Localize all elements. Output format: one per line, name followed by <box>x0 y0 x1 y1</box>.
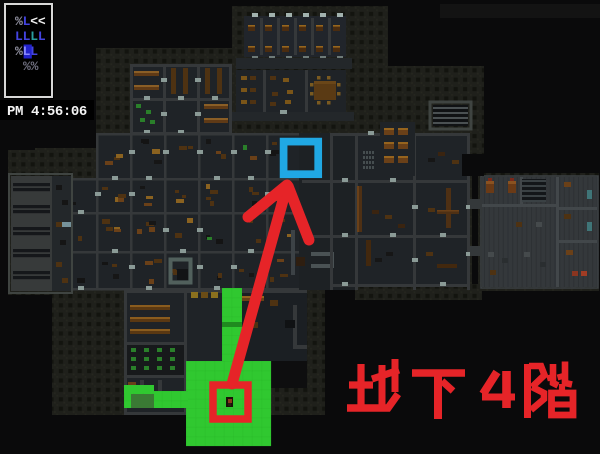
svg-text:%LL: %LL <box>15 44 38 59</box>
svg-text:%%: %% <box>23 59 39 74</box>
svg-text:%L<<: %L<< <box>15 14 46 29</box>
svg-text:PM 4:56:06: PM 4:56:06 <box>7 104 87 120</box>
svg-text:LLLL: LLLL <box>15 29 46 44</box>
